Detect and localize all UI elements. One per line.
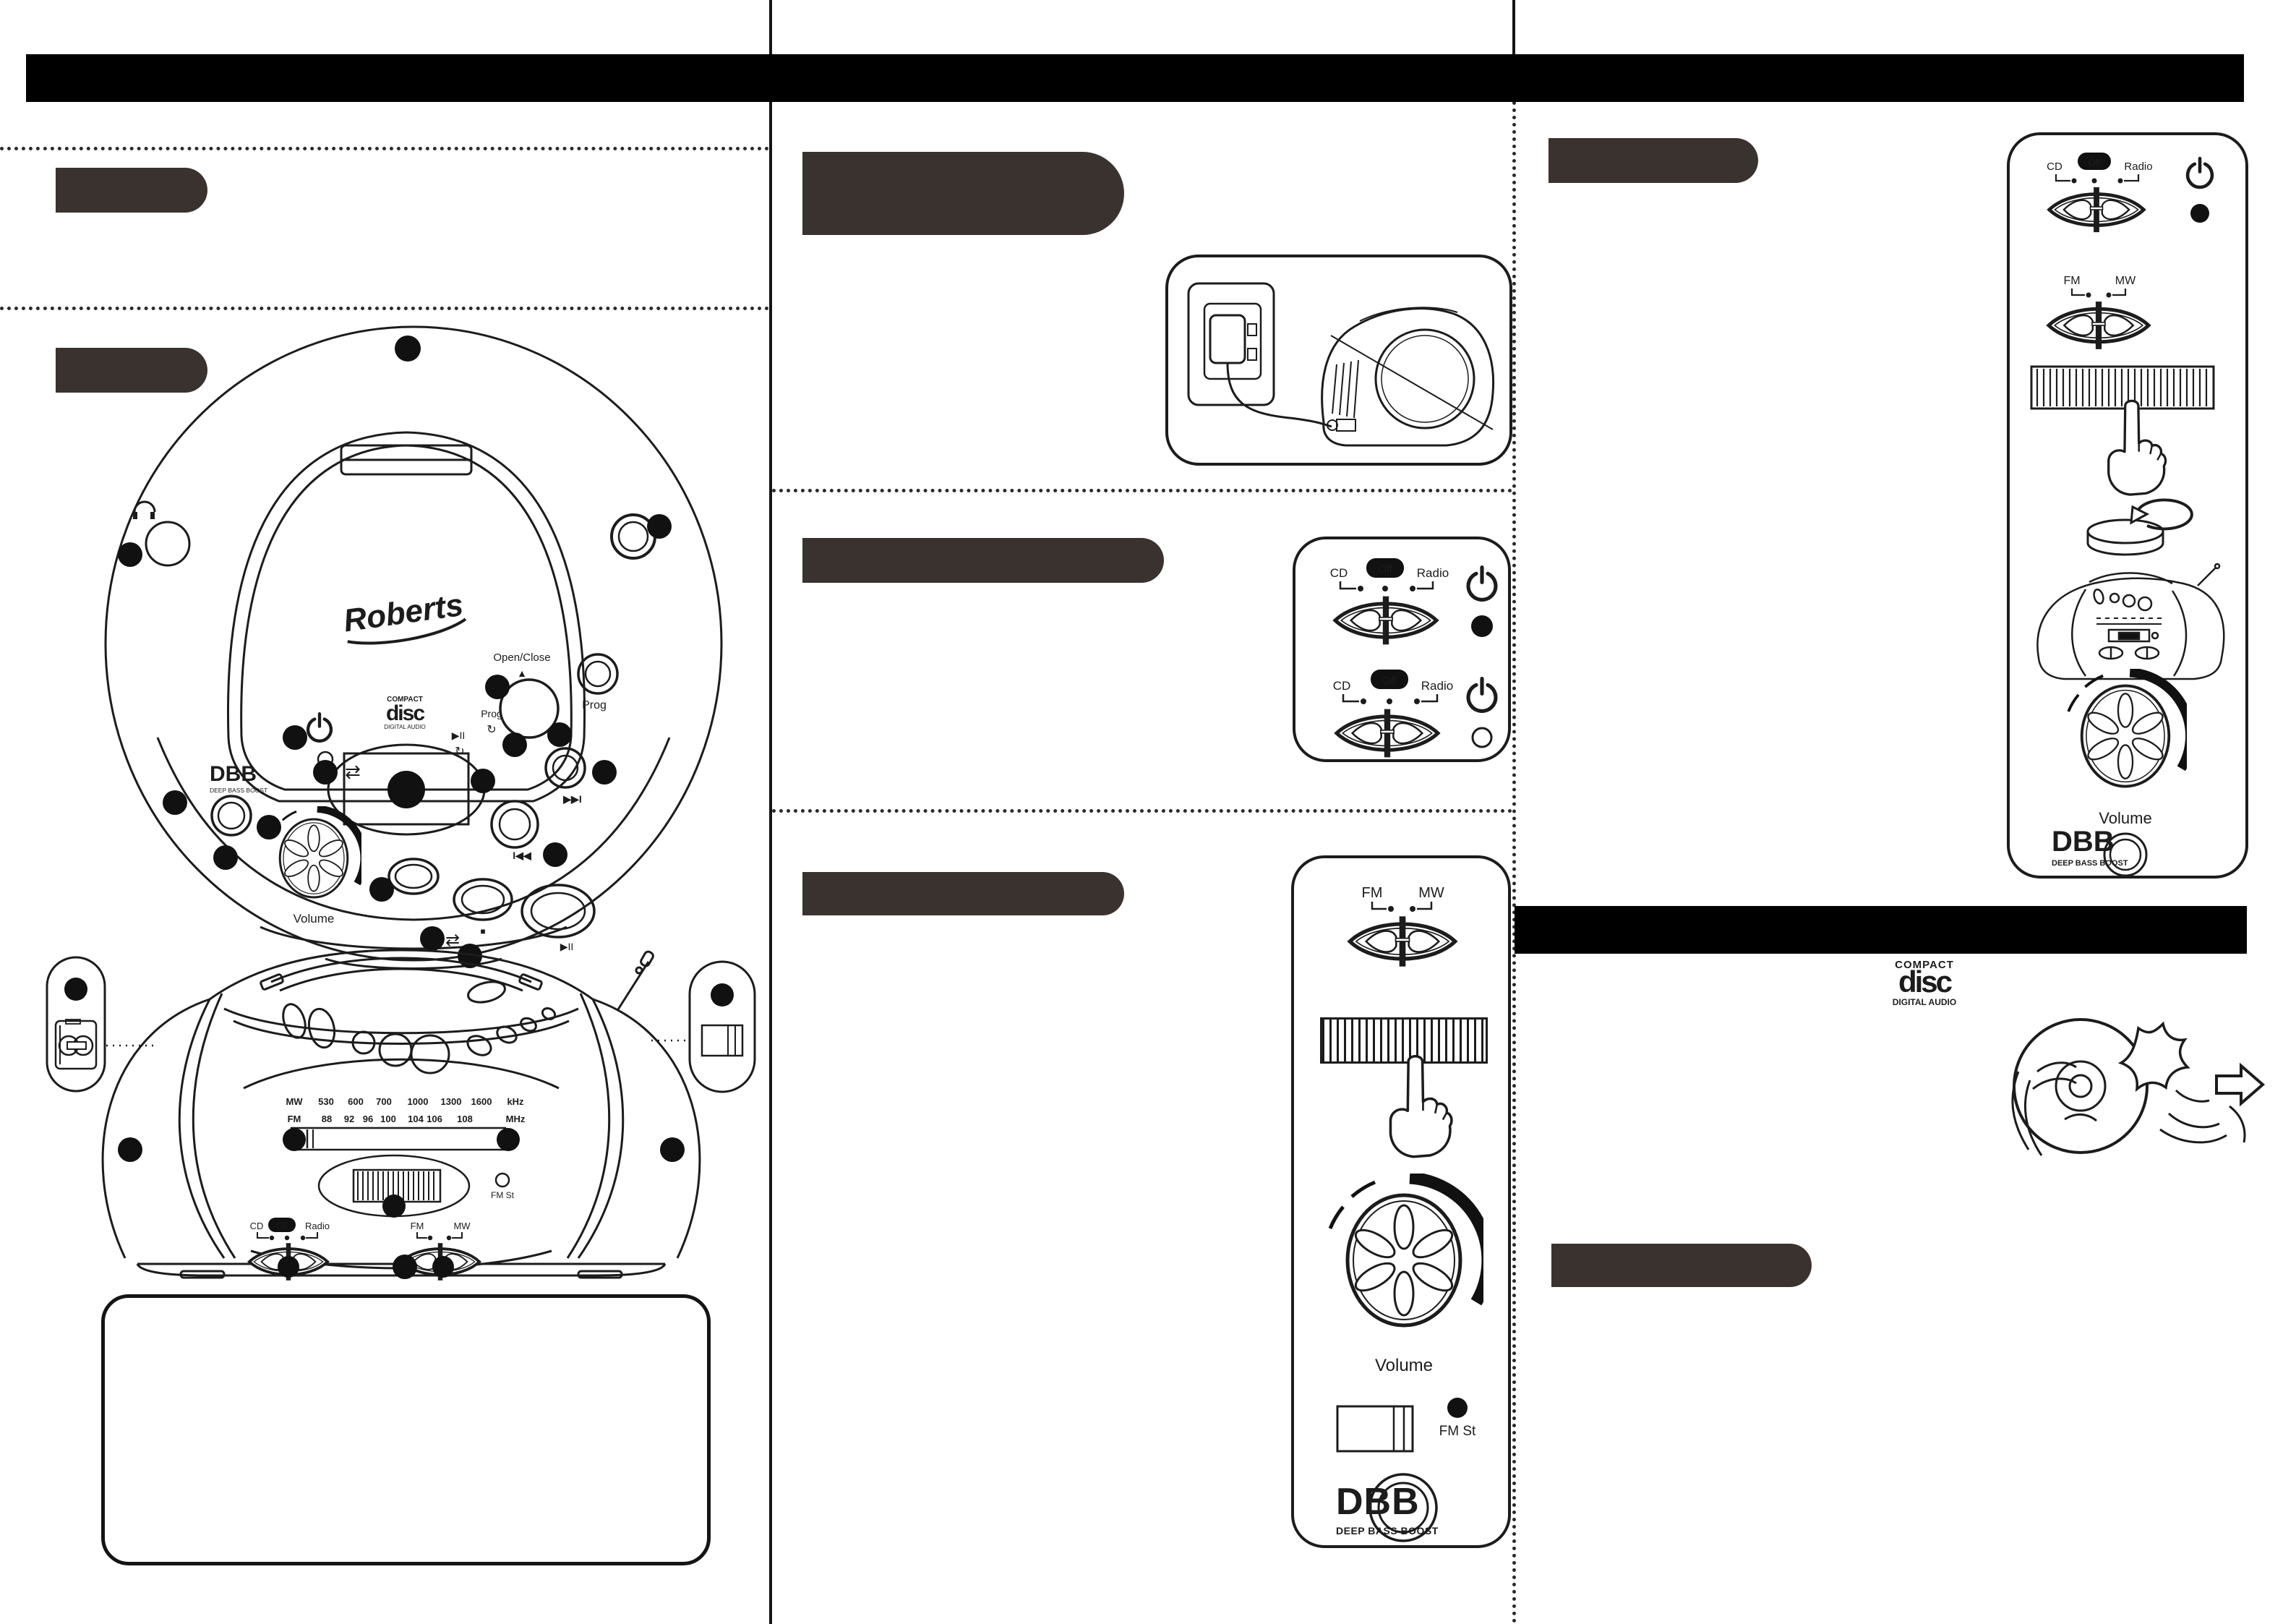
side-switch-callout: [651, 962, 755, 1092]
fm-stereo-led: [1447, 1398, 1468, 1418]
redacted-heading: [1551, 1244, 1812, 1287]
mode-switch: [1335, 597, 1436, 645]
prog-label: Prog: [582, 699, 607, 711]
callout-dot: [660, 1137, 685, 1162]
redacted-heading: [802, 538, 1164, 583]
off-label: Off: [2088, 157, 2100, 168]
callout-dot: [471, 769, 495, 793]
mains-connection-panel: [1165, 255, 1512, 466]
top-view-diagram: Roberts COMPACT disc DIGITAL AUDIO Open/…: [87, 304, 723, 969]
dial-tick: 108: [457, 1114, 473, 1124]
mode-switch: [2049, 187, 2144, 232]
repeat-icon: ⇄: [345, 761, 361, 782]
cd-logo-disc: disc: [1874, 970, 1975, 994]
callout-dot: [647, 514, 672, 539]
cd-label: CD: [1330, 566, 1348, 580]
brand-logo: Roberts: [341, 587, 467, 649]
headphone-jack: [146, 522, 189, 565]
callout-dot: [432, 1256, 454, 1278]
fm-stereo-led: [496, 1174, 509, 1187]
dial-tick: 530: [318, 1096, 334, 1107]
dial-tick: 96: [363, 1114, 373, 1124]
mini-boombox-illustration: [2037, 564, 2224, 679]
disc: [2014, 1020, 2147, 1153]
mains-cable: [1228, 363, 1332, 427]
mode-switch-off-diagram: CD Off Radio: [1333, 670, 1496, 757]
cd-label: CD: [2047, 161, 2062, 173]
dial-mw-band: MW: [286, 1096, 303, 1107]
skip-back-icon: I◀◀: [513, 850, 531, 861]
power-icon: [1468, 679, 1496, 711]
stop-icon: ■: [480, 926, 485, 936]
ac-socket-callout: [47, 957, 157, 1091]
volume-label: Volume: [1294, 1356, 1514, 1376]
off-label: Off: [276, 1221, 288, 1231]
power-icon: [308, 714, 331, 741]
volume-knob: [270, 809, 364, 897]
dial-fm-unit: MHz: [506, 1114, 526, 1124]
callout-dot: [547, 722, 572, 747]
mode-switch-on-diagram: CD Off Radio: [1330, 558, 1496, 644]
callout-dot: [257, 815, 281, 839]
volume-label: Volume: [2099, 809, 2151, 827]
radio-label: Radio: [1421, 679, 1453, 693]
band-switch: [1350, 916, 1455, 966]
skip-forward-icon: ▶▶I: [562, 793, 581, 805]
dc-socket: [1337, 419, 1355, 431]
brand-logo-text: Roberts: [341, 587, 465, 639]
left-speaker-arc: [179, 999, 224, 1258]
callout-dot: [283, 725, 307, 750]
mw-label: MW: [453, 1221, 471, 1231]
cd-logo-disc: disc: [386, 701, 424, 725]
dial-tick: 92: [344, 1114, 354, 1124]
quick-start-panel: CD Off Radio FM MW: [2007, 132, 2248, 879]
mw-label: MW: [1418, 885, 1444, 901]
dial-tick: 700: [376, 1096, 392, 1107]
callout-dot: [283, 1128, 306, 1151]
dial-tick: 104: [408, 1114, 424, 1124]
dbb-button: [1370, 1474, 1436, 1541]
redacted-title-bar: [26, 54, 2244, 102]
device-side-view: [1322, 307, 1494, 445]
dbb-label: DBB: [210, 762, 257, 786]
dbb-sub-label: DEEP BASS BOOST: [210, 787, 267, 794]
callout-dot: [592, 760, 617, 785]
callout-dot: [387, 771, 425, 808]
radio-controls-panel: FM MW Volume FM St DBB DEEP BASS BOOST: [1291, 855, 1511, 1548]
dial-tick: 1300: [441, 1096, 462, 1107]
fm-stereo-label: FM St: [1439, 1424, 1476, 1439]
dbb-slider-switch: [1337, 1406, 1413, 1451]
callout-dot: [118, 1137, 142, 1162]
dial-tick: 106: [427, 1114, 442, 1124]
callout-dot: [393, 1255, 417, 1279]
off-label: Off: [1378, 563, 1393, 576]
callout-dot: [502, 732, 527, 757]
loop-icon: ↻: [487, 724, 496, 736]
mode-switch: [1337, 709, 1438, 758]
open-close-label: Open/Close: [493, 651, 550, 664]
mw-label: MW: [2115, 275, 2136, 287]
dial-tick: 88: [322, 1114, 332, 1124]
band-switch-diagram: FM MW: [1350, 885, 1455, 967]
callout-dot: [118, 542, 142, 567]
off-label: Off: [1382, 675, 1397, 687]
dial-tick: 600: [348, 1096, 364, 1107]
dial-window: [291, 1128, 505, 1150]
fm-label: FM: [1362, 885, 1383, 901]
power-led-on: [1471, 615, 1493, 637]
power-switch-panel: CD Off Radio CD Off Radio: [1293, 537, 1511, 762]
dial-tick: 100: [380, 1114, 396, 1124]
radio-label: Radio: [305, 1221, 330, 1231]
eject-icon: ▲: [517, 667, 527, 679]
callout-dot: [64, 978, 87, 1001]
mains-plug: [1210, 315, 1245, 363]
loop-icon: ↻: [455, 745, 464, 758]
redacted-section-bar: [1515, 906, 2247, 954]
pointing-hand-icon: [2109, 401, 2166, 495]
headphone-icon: [134, 502, 155, 512]
notes-box: [101, 1294, 711, 1565]
redacted-heading: [1548, 138, 1758, 183]
skip-back-button: [492, 801, 538, 847]
callout-dot: [213, 845, 238, 870]
callout-dot: [313, 760, 338, 785]
separator-line: [772, 809, 1512, 813]
callout-dot: [497, 1128, 520, 1151]
compact-disc-logo: COMPACT disc DIGITAL AUDIO: [1874, 959, 1975, 1007]
play-pause-icon: ▶II: [452, 730, 466, 741]
volume-knob: [1330, 1178, 1488, 1325]
separator-line: [772, 489, 1512, 492]
power-led-on: [2190, 204, 2209, 223]
front-view-diagram: MW 530 600 700 1000 1300 1600 kHz FM 88 …: [40, 940, 763, 1280]
separator-line: [0, 147, 769, 150]
power-led-off: [1473, 728, 1491, 747]
radio-label: Radio: [2124, 161, 2152, 173]
wipe-direction-arrow: [2216, 1066, 2263, 1103]
tuning-wheel: [2031, 367, 2214, 409]
callout-dot: [395, 336, 421, 362]
mode-switch-diagram: CD Off Radio: [2047, 153, 2212, 232]
band-switch: [2049, 302, 2149, 349]
dial-fm-band: FM: [288, 1114, 301, 1124]
redacted-heading: [802, 872, 1124, 915]
cd-label: CD: [250, 1221, 264, 1231]
dial-mw-unit: kHz: [507, 1096, 524, 1107]
column-divider-right-top: [1512, 0, 1515, 55]
mains-plug-illustration: [1168, 257, 1509, 463]
dial-tick: 1600: [471, 1096, 492, 1107]
column-divider-right-dotted: [1512, 101, 1516, 1624]
fm-stereo-label: FM St: [491, 1190, 515, 1200]
volume-label: Volume: [294, 912, 335, 926]
fm-label: FM: [2063, 275, 2080, 287]
manual-page: Roberts COMPACT disc DIGITAL AUDIO Open/…: [0, 0, 2296, 1624]
right-speaker-arc: [578, 999, 623, 1258]
callout-dot: [485, 675, 510, 699]
callout-dot: [543, 842, 567, 867]
callout-dot: [278, 1256, 299, 1278]
band-switch-diagram: FM MW: [2049, 275, 2149, 349]
tuning-dial-scale: MW 530 600 700 1000 1300 1600 kHz FM 88 …: [286, 1096, 525, 1124]
pointing-hand-icon: [1390, 1056, 1451, 1157]
callout-dot: [382, 1195, 406, 1218]
rotate-disc-icon: [2088, 500, 2192, 555]
volume-knob: [2068, 672, 2190, 787]
antenna: [618, 962, 648, 1009]
callout-dot: [163, 790, 187, 815]
fm-label: FM: [411, 1221, 424, 1231]
redacted-heading: [56, 168, 207, 213]
cd-logo-digital: DIGITAL AUDIO: [384, 724, 425, 730]
power-icon: [1468, 568, 1496, 600]
callout-dot: [369, 877, 394, 902]
dial-tick: 1000: [408, 1096, 429, 1107]
prog-label: Prog: [481, 708, 502, 719]
cd-label: CD: [1333, 679, 1351, 693]
callout-dot: [711, 983, 734, 1007]
radio-label: Radio: [1417, 566, 1449, 580]
compact-disc-logo: COMPACT disc DIGITAL AUDIO: [384, 696, 425, 730]
disc-cleaning-illustration: [1987, 1005, 2276, 1171]
redacted-heading: [802, 152, 1124, 235]
cd-logo-digital: DIGITAL AUDIO: [1874, 997, 1975, 1007]
power-icon: [2188, 158, 2212, 187]
